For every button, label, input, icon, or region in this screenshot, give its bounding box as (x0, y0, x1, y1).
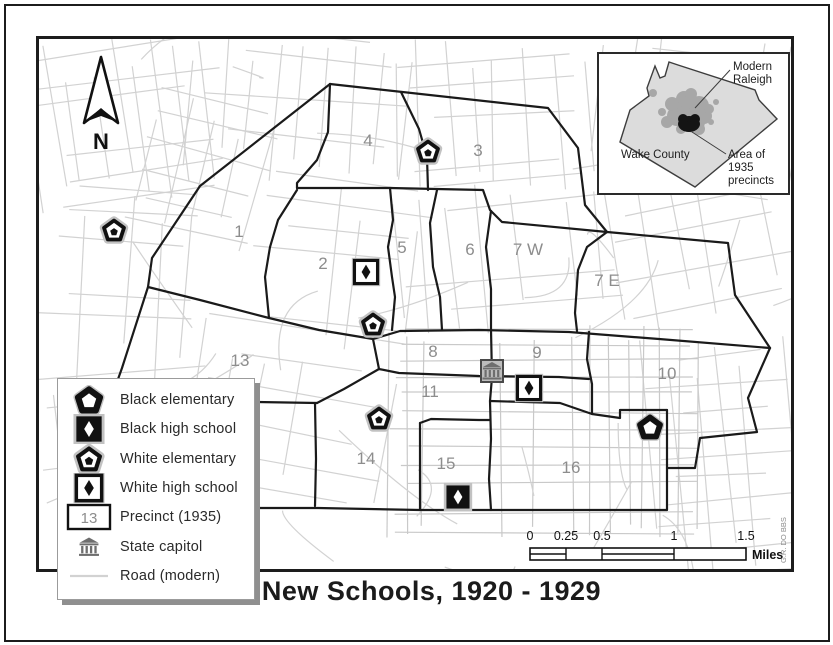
legend-label: White high school (120, 480, 238, 496)
legend-row: Black elementary (58, 385, 254, 414)
legend-label: Road (modern) (120, 568, 220, 584)
map-credit: G.R. DO BBS (779, 517, 788, 563)
svg-text:13: 13 (81, 510, 98, 527)
precinct-label: 6 (465, 240, 474, 259)
state-capitol-icon (79, 537, 99, 555)
inset-label-area: Area of (728, 149, 766, 161)
svg-text:Raleigh: Raleigh (733, 74, 772, 86)
white-high-icon (517, 376, 540, 399)
white-elementary-icon (58, 444, 120, 474)
scale-tick-label: 0.25 (554, 529, 578, 543)
white-high-icon (76, 475, 101, 500)
black-high-icon (446, 485, 469, 508)
precinct-label: 15 (437, 454, 456, 473)
precinct-label: 7 W (513, 240, 543, 259)
north-label: N (93, 129, 109, 154)
legend-label: Black elementary (120, 392, 234, 408)
inset-locator-map: Modern Raleigh Wake County Area of 1935 … (597, 52, 790, 195)
legend-row: White elementary (58, 444, 254, 473)
precinct-label: 1 (234, 222, 243, 241)
white-high-icon (354, 260, 377, 283)
scale-tick-label: 1 (671, 529, 678, 543)
precinct-label: 8 (428, 342, 437, 361)
precinct-label: 4 (363, 131, 372, 150)
precincts-1935-area (678, 114, 700, 132)
north-arrow-icon: N (84, 57, 118, 154)
black-high-school-icon (58, 414, 120, 444)
state-capitol-icon (58, 532, 120, 562)
precinct-label: 9 (532, 343, 541, 362)
white-high-school-icon (58, 473, 120, 503)
legend: Black elementaryBlack high schoolWhite e… (57, 378, 255, 600)
legend-row: Road (modern) (58, 562, 254, 591)
legend-row: White high school (58, 474, 254, 503)
scale-tick-label: 0 (527, 529, 534, 543)
precinct-box-icon: 13 (58, 502, 120, 532)
legend-row: Black high school (58, 415, 254, 444)
scale-tick-label: 0.5 (593, 529, 610, 543)
legend-label: Black high school (120, 421, 236, 437)
precinct-label: 5 (397, 238, 406, 257)
black-high-icon (76, 417, 101, 442)
svg-text:precincts: precincts (728, 175, 774, 187)
precinct-label: 14 (357, 449, 376, 468)
white-elementary-icon (78, 448, 100, 469)
black-elementary-icon (78, 389, 100, 410)
scale-tick-label: 1.5 (737, 529, 754, 543)
black-elementary-icon (58, 385, 120, 415)
precinct-label: 7 E (594, 271, 620, 290)
legend-row: 13Precinct (1935) (58, 503, 254, 532)
road-line-icon (58, 561, 120, 591)
white-elementary-icon (418, 142, 438, 161)
svg-text:1935: 1935 (728, 162, 754, 174)
inset-label-modern-raleigh: Modern (733, 61, 772, 73)
inset-label-wake-county: Wake County (621, 149, 690, 161)
precinct-label: 13 (231, 351, 250, 370)
white-elementary-icon (369, 409, 389, 428)
precinct-label: 2 (318, 254, 327, 273)
precinct-label: 16 (562, 458, 581, 477)
legend-label: State capitol (120, 539, 202, 555)
white-elementary-icon (104, 221, 124, 240)
legend-row: State capitol (58, 532, 254, 561)
black-elementary-icon (640, 418, 660, 437)
legend-label: Precinct (1935) (120, 509, 221, 525)
precinct-label: 11 (421, 382, 439, 401)
precinct-label: 10 (658, 364, 677, 383)
white-elementary-icon (363, 315, 383, 334)
state-capitol-icon (481, 360, 503, 382)
precinct-label: 3 (473, 141, 482, 160)
legend-label: White elementary (120, 451, 236, 467)
